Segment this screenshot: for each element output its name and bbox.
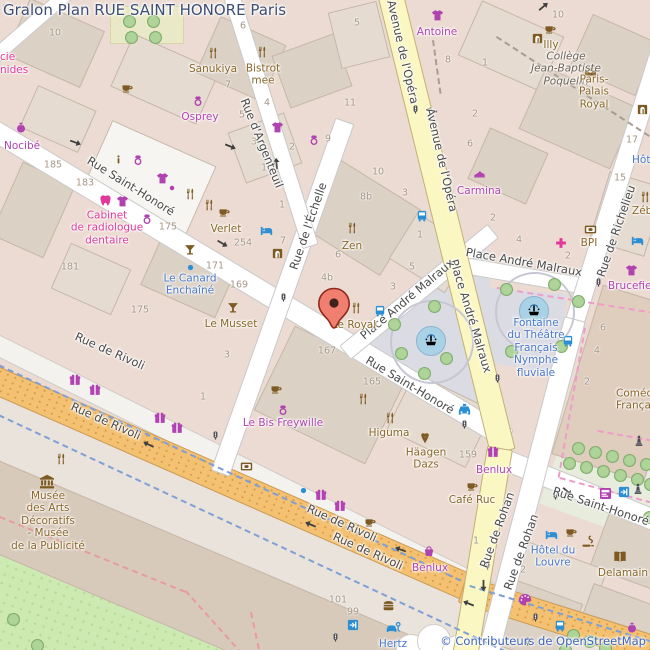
- poi-label: Hôtel du Louvre: [531, 545, 575, 570]
- bed-icon: [631, 234, 644, 247]
- house-number: 9: [325, 134, 331, 145]
- tree-icon: [500, 283, 513, 296]
- museum-icon: [39, 474, 55, 490]
- house-number: 2: [289, 142, 295, 153]
- arrow-icon: [534, 0, 552, 15]
- house-number: 3: [224, 350, 230, 361]
- poi-label: Benlux: [476, 464, 512, 476]
- house-number: 1: [279, 200, 285, 211]
- poi-label: Cabinet de radiologue dentaire: [71, 209, 143, 246]
- poi-label: Benlux: [412, 562, 448, 574]
- ring-icon: [308, 134, 320, 146]
- osm-attribution[interactable]: © Contributeurs de OpenStreetMap: [440, 634, 646, 648]
- perfume-icon: [626, 622, 638, 634]
- light-icon: [460, 420, 469, 429]
- dotp-icon: [169, 185, 175, 191]
- cup-icon: [565, 526, 577, 538]
- door-icon: [532, 33, 543, 44]
- cup-icon: [270, 383, 282, 395]
- house-number: 171: [206, 261, 224, 272]
- poi-label: Higuma: [369, 427, 410, 439]
- poi-label: Delamain: [598, 567, 648, 579]
- house-number: 4: [264, 98, 270, 109]
- poi-label: Osprey: [181, 111, 218, 123]
- poi-label: cie: [0, 51, 15, 63]
- house-number: 10: [372, 167, 384, 178]
- house-number: 181: [61, 262, 79, 273]
- cup-icon: [121, 82, 133, 94]
- shirt-icon: [271, 121, 284, 134]
- house-number: 159: [459, 450, 477, 461]
- poi-label: nides: [0, 64, 28, 76]
- statue-icon: [633, 435, 645, 447]
- shoe-icon: [473, 167, 486, 180]
- tree-icon: [572, 295, 585, 308]
- house-number: 3: [402, 188, 408, 199]
- poi-label: Nocibé: [4, 140, 40, 152]
- poi-label: Zen: [342, 240, 362, 252]
- house-number: 101: [329, 595, 347, 606]
- house-number: 167: [318, 346, 336, 357]
- gift-icon: [171, 422, 183, 434]
- house-number: 99: [347, 607, 359, 618]
- tree-icon: [580, 461, 593, 474]
- gift-icon: [89, 384, 101, 396]
- poi-label: Zéb: [632, 205, 650, 217]
- house-number: 6: [600, 323, 606, 334]
- house-number: 7: [225, 80, 231, 91]
- tree-icon: [149, 31, 162, 44]
- house-number: 5: [409, 262, 415, 273]
- house-number: 17: [626, 135, 638, 146]
- door-icon: [272, 248, 283, 259]
- tree-icon: [623, 454, 636, 467]
- gift-icon: [487, 446, 499, 458]
- poi-label: Illy: [543, 39, 558, 51]
- gift-icon: [154, 412, 166, 424]
- gift-icon: [69, 374, 81, 386]
- light-icon: [411, 105, 420, 114]
- house-number: 8b: [360, 192, 372, 203]
- house-number: 6: [240, 21, 246, 32]
- cup-icon: [218, 206, 230, 218]
- gift-icon: [334, 500, 346, 512]
- house-number: 185: [44, 160, 62, 171]
- carkey-icon: [386, 620, 401, 635]
- burger-icon: [382, 599, 395, 612]
- tree-icon: [644, 478, 650, 491]
- poi-label: Hertz: [379, 638, 407, 650]
- house-number: 6: [335, 250, 341, 261]
- fork-icon: [184, 188, 196, 200]
- bed-icon: [545, 528, 558, 541]
- house-number: 175: [159, 222, 177, 233]
- poi-label: Fontaine du Théâtre Français Nymphe fluv…: [507, 317, 564, 379]
- tree-icon: [440, 352, 453, 365]
- tree-icon: [640, 458, 650, 471]
- fountain-icon: [416, 326, 446, 356]
- statue-icon: [632, 483, 644, 495]
- tree-icon: [7, 613, 20, 626]
- light-icon: [594, 278, 603, 287]
- passage-dashed-line: [432, 40, 441, 94]
- house-number: 15: [614, 173, 626, 184]
- house-number: 7: [280, 236, 286, 247]
- ring-icon: [277, 404, 289, 416]
- cup-icon: [544, 23, 556, 35]
- poi-label: Le Bis Freywille: [243, 417, 323, 429]
- poi-label: Sanukiya: [189, 63, 237, 75]
- frame-icon: [240, 460, 253, 473]
- gift-icon: [315, 489, 327, 501]
- dotb-icon: [300, 487, 307, 494]
- fork-icon: [384, 412, 396, 424]
- poi-label: Brucefield: [608, 280, 650, 292]
- tree-icon: [31, 639, 44, 650]
- tree-icon: [606, 450, 619, 463]
- tree-icon: [125, 31, 138, 44]
- bed-icon: [260, 224, 273, 237]
- bus-icon: [416, 210, 428, 222]
- tree-icon: [572, 442, 585, 455]
- poi-label: Hôte: [632, 154, 650, 166]
- light-icon: [493, 374, 502, 383]
- fork-icon: [346, 222, 358, 234]
- door-icon: [637, 104, 648, 115]
- shirt-icon: [156, 172, 169, 185]
- house-number: 10: [552, 10, 564, 21]
- handbag-icon: [423, 545, 435, 557]
- dotb-icon: [187, 264, 194, 271]
- light-icon: [279, 293, 288, 302]
- location-marker-pin[interactable]: [316, 287, 352, 333]
- taxi-icon: [457, 402, 472, 417]
- cocktail-icon: [227, 302, 239, 314]
- house-number: 165: [363, 377, 381, 388]
- cocktail-icon: [184, 244, 196, 256]
- tree-icon: [614, 469, 627, 482]
- house-number: 4b: [321, 273, 333, 284]
- house-number: 2: [490, 213, 496, 224]
- arrow-icon: [213, 234, 231, 252]
- exit-icon: [618, 486, 630, 498]
- house-number: 1: [417, 230, 423, 241]
- poi-label: Verlet: [211, 223, 242, 235]
- tree-icon: [548, 278, 561, 291]
- house-number: 254: [234, 238, 252, 249]
- tree-icon: [418, 367, 431, 380]
- ring-icon: [132, 154, 144, 166]
- palette-icon: [518, 593, 532, 607]
- house-number: 6: [467, 139, 473, 150]
- house-number: 11: [344, 98, 356, 109]
- poi-label: Bistrot mee: [246, 63, 280, 88]
- fork-icon: [357, 393, 369, 405]
- house-number: 2: [565, 251, 571, 262]
- arrow-icon: [477, 579, 490, 592]
- house-number: 10: [49, 28, 61, 39]
- light-icon: [531, 613, 540, 622]
- light-icon: [331, 633, 340, 642]
- house-number: 183: [76, 178, 94, 189]
- tree-icon: [395, 347, 408, 360]
- bus-icon: [554, 620, 566, 632]
- building: [51, 243, 132, 316]
- info-icon: [114, 155, 123, 164]
- house-number: 1: [482, 58, 488, 69]
- house-number: 1: [200, 392, 206, 403]
- tree-icon: [597, 465, 610, 478]
- house-number: 2: [472, 109, 478, 120]
- cup-icon: [466, 480, 478, 492]
- house-number: 8: [445, 55, 451, 66]
- cross-icon: [555, 237, 567, 249]
- poi-label: Paris-Palais Royal: [566, 73, 622, 110]
- poi-label: Le Canard Enchaîné: [163, 273, 216, 298]
- house-number: 5: [354, 18, 360, 29]
- frame-icon: [584, 223, 597, 236]
- fork-icon: [639, 191, 650, 203]
- fork-icon: [207, 47, 219, 59]
- poi-label: BPI: [581, 237, 598, 249]
- map-canvas[interactable]: Gralon Plan RUE SAINT HONORE Paris © Con…: [0, 0, 650, 650]
- ring-icon: [192, 95, 204, 107]
- perfume-icon: [15, 122, 27, 134]
- house-number: 3: [390, 282, 396, 293]
- house-number: 169: [230, 280, 248, 291]
- icecream-icon: [419, 432, 431, 444]
- poi-label: Antoine: [417, 26, 457, 38]
- house-number: 4: [516, 235, 522, 246]
- poi-label: Le Musset: [205, 318, 258, 330]
- street-name-label: Rue de Rivoli: [73, 329, 147, 372]
- shirt-icon: [116, 195, 129, 208]
- house-number: 175: [131, 305, 149, 316]
- book-icon: [613, 550, 627, 564]
- tree-icon: [563, 457, 576, 470]
- fork-icon: [256, 46, 268, 58]
- light-icon: [211, 431, 220, 440]
- poi-label: Café Ruc: [449, 494, 496, 506]
- house-number: 1: [473, 536, 479, 547]
- house-number: 4: [594, 346, 600, 357]
- tooth-icon: [99, 194, 112, 207]
- shirt-icon: [625, 264, 638, 277]
- poi-label: Musée des Arts Décoratifs - Musée de la …: [11, 490, 85, 552]
- shirt-icon: [431, 9, 444, 22]
- house-number: 2: [584, 377, 590, 388]
- page-title: Gralon Plan RUE SAINT HONORE Paris: [3, 1, 286, 19]
- tree-icon: [589, 446, 602, 459]
- poi-label: Carmina: [457, 185, 501, 197]
- fork-icon: [203, 199, 215, 211]
- ecig-icon: [581, 535, 595, 549]
- tree-icon: [428, 300, 441, 313]
- exit-icon: [347, 619, 359, 631]
- poi-label: Comédie Française: [616, 388, 650, 413]
- fork-icon: [55, 453, 67, 465]
- poi-label: Häagen Dazs: [406, 447, 447, 472]
